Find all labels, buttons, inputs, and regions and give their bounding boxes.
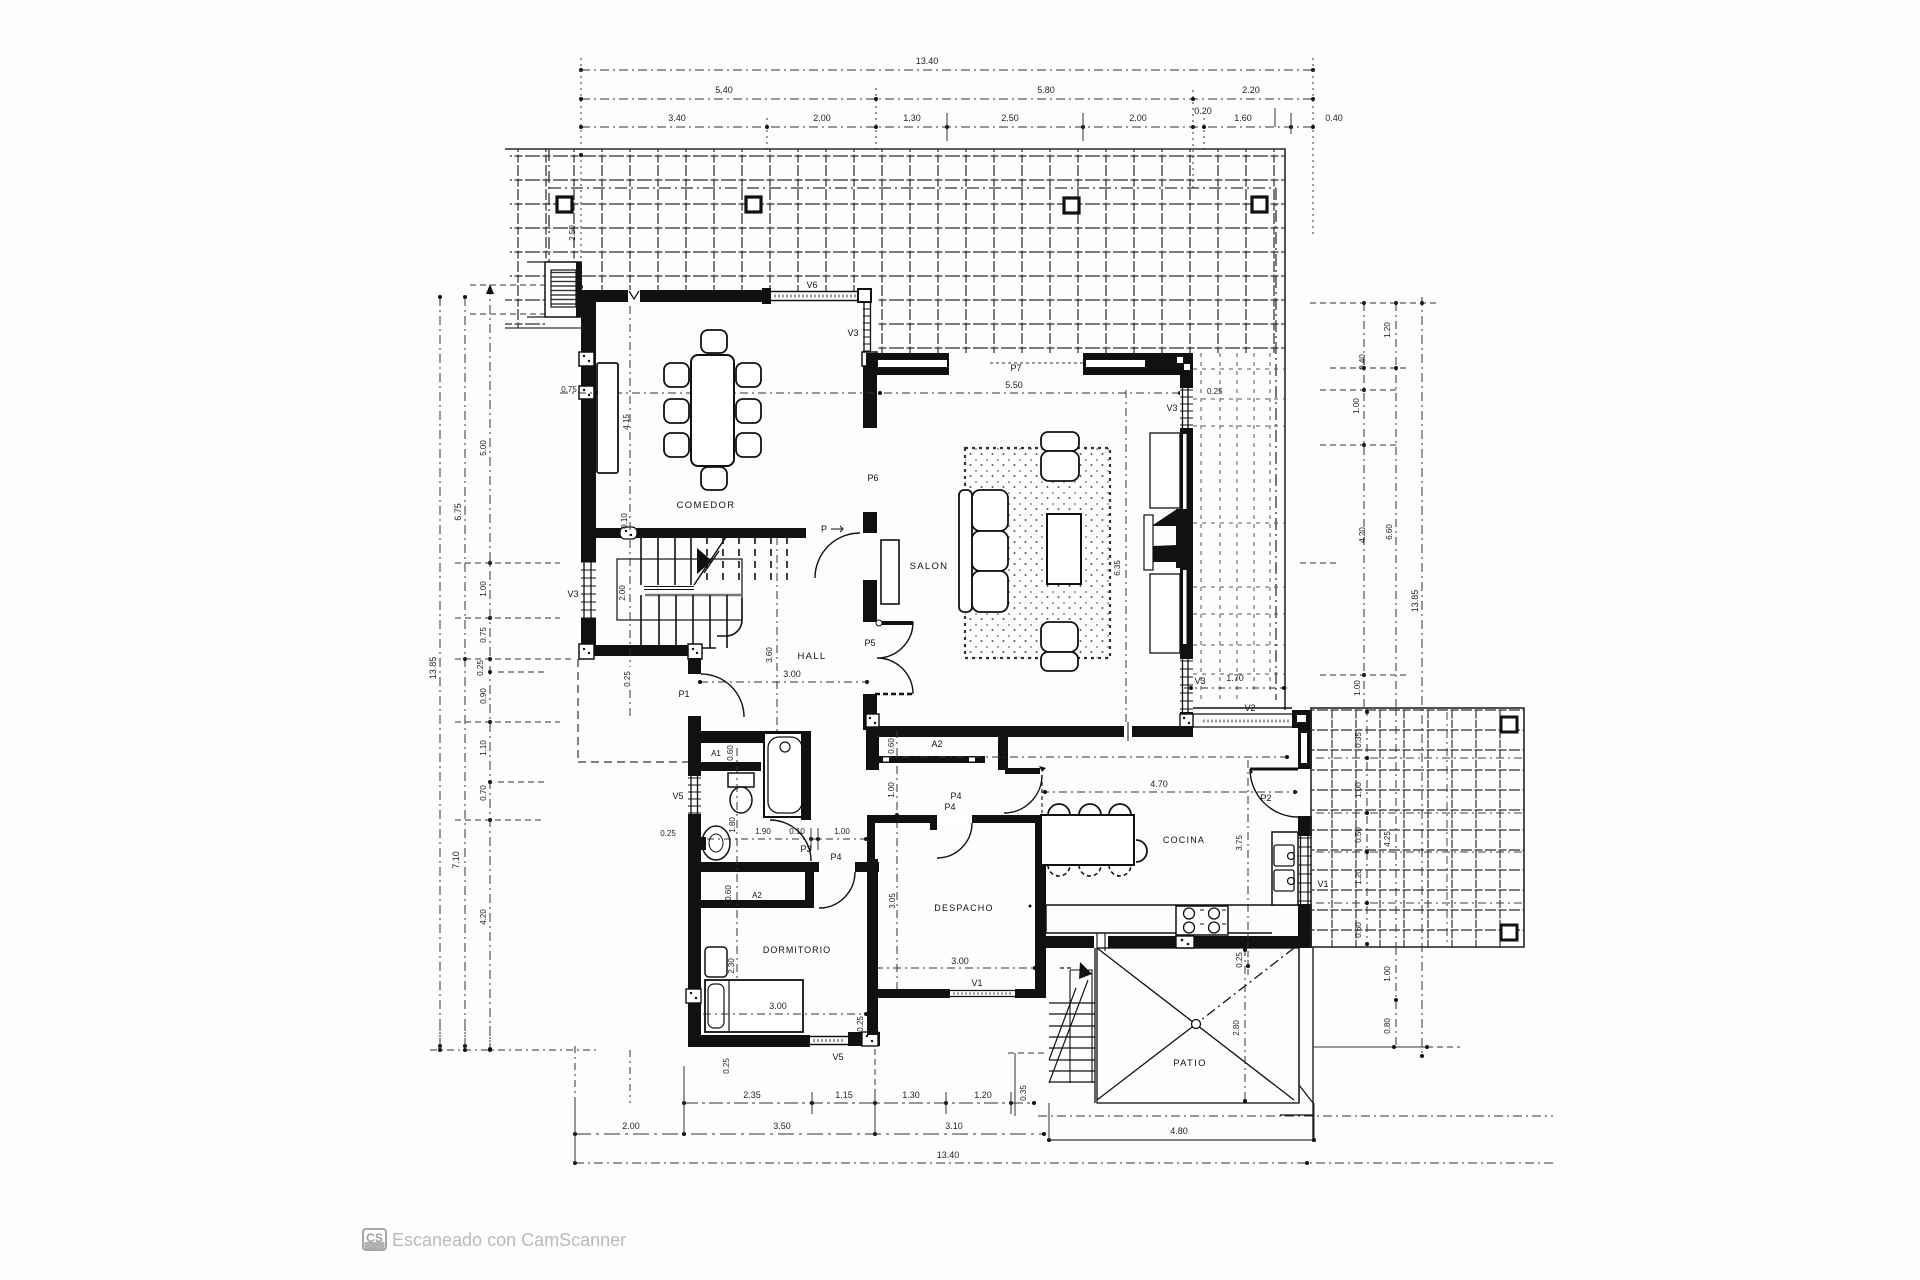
- svg-text:P: P: [821, 524, 827, 534]
- svg-text:6.35: 6.35: [1113, 560, 1122, 576]
- svg-text:0.60: 0.60: [726, 745, 735, 761]
- svg-text:0.25: 0.25: [856, 1016, 865, 1032]
- svg-text:P4: P4: [950, 791, 961, 801]
- svg-text:2.00: 2.00: [618, 585, 627, 601]
- svg-text:0.35: 0.35: [1354, 732, 1363, 748]
- svg-text:4.20: 4.20: [1358, 527, 1367, 543]
- svg-text:1.80: 1.80: [728, 817, 737, 833]
- svg-text:P4: P4: [944, 802, 955, 812]
- svg-text:DESPACHO: DESPACHO: [934, 903, 993, 913]
- svg-text:0.60: 0.60: [887, 738, 896, 754]
- svg-text:0.25: 0.25: [623, 671, 632, 687]
- svg-text:0.90: 0.90: [479, 688, 488, 704]
- svg-text:4.70: 4.70: [1150, 779, 1168, 789]
- svg-text:P2: P2: [1260, 793, 1271, 803]
- svg-text:V3: V3: [567, 589, 578, 599]
- svg-text:V6: V6: [806, 280, 817, 290]
- svg-text:0.10: 0.10: [620, 513, 629, 529]
- svg-text:0.25: 0.25: [476, 660, 485, 676]
- svg-text:A2: A2: [752, 891, 762, 900]
- svg-text:0.60: 0.60: [724, 885, 733, 901]
- svg-text:1.00: 1.00: [1353, 680, 1362, 696]
- svg-text:1.20: 1.20: [1383, 322, 1392, 338]
- svg-text:0.50: 0.50: [1354, 827, 1363, 843]
- svg-text:1.20: 1.20: [974, 1090, 992, 1100]
- svg-text:3.05: 3.05: [888, 893, 897, 909]
- svg-text:0.20: 0.20: [1194, 106, 1212, 116]
- svg-text:4.25: 4.25: [1383, 831, 1392, 847]
- svg-text:1.60: 1.60: [1234, 113, 1252, 123]
- svg-text:13.40: 13.40: [916, 56, 939, 66]
- svg-text:Escaneado con CamScanner: Escaneado con CamScanner: [392, 1230, 626, 1250]
- svg-text:V3: V3: [1166, 403, 1177, 413]
- svg-text:1.00: 1.00: [834, 827, 850, 836]
- svg-text:P7: P7: [1010, 363, 1021, 373]
- svg-text:A2: A2: [931, 739, 942, 749]
- svg-text:1.20: 1.20: [1354, 869, 1363, 885]
- svg-text:1.30: 1.30: [903, 113, 921, 123]
- svg-text:A1: A1: [711, 749, 721, 758]
- svg-text:1.00: 1.00: [887, 782, 896, 798]
- svg-text:5.50: 5.50: [1005, 380, 1023, 390]
- svg-text:V3: V3: [1194, 676, 1205, 686]
- svg-text:3.00: 3.00: [783, 669, 801, 679]
- svg-text:2.50: 2.50: [568, 225, 577, 241]
- svg-text:2.80: 2.80: [1232, 1020, 1241, 1036]
- svg-text:2.50: 2.50: [1001, 113, 1019, 123]
- svg-text:DORMITORIO: DORMITORIO: [763, 945, 831, 955]
- svg-text:0.25: 0.25: [1235, 952, 1244, 968]
- svg-text:3.00: 3.00: [769, 1001, 787, 1011]
- svg-text:2.00: 2.00: [1129, 113, 1147, 123]
- svg-text:13.85: 13.85: [428, 657, 438, 680]
- svg-text:CS: CS: [366, 1231, 383, 1245]
- svg-text:13.85: 13.85: [1410, 590, 1420, 613]
- svg-text:1.70: 1.70: [1226, 673, 1244, 683]
- svg-text:0.75: 0.75: [479, 627, 488, 643]
- svg-text:13.40: 13.40: [937, 1150, 960, 1160]
- svg-text:1.90: 1.90: [755, 827, 771, 836]
- svg-text:3.50: 3.50: [773, 1121, 791, 1131]
- svg-text:3.75: 3.75: [1235, 835, 1244, 851]
- svg-text:0.25: 0.25: [1207, 387, 1223, 396]
- svg-text:P4: P4: [830, 852, 841, 862]
- svg-text:0.80: 0.80: [1383, 1018, 1392, 1034]
- svg-text:1.00: 1.00: [479, 581, 488, 597]
- svg-text:2.35: 2.35: [743, 1090, 761, 1100]
- svg-text:V3: V3: [847, 328, 858, 338]
- svg-text:0.25: 0.25: [722, 1058, 731, 1074]
- svg-text:4.20: 4.20: [479, 909, 488, 925]
- svg-text:2.30: 2.30: [727, 958, 736, 974]
- svg-text:3.10: 3.10: [945, 1121, 963, 1131]
- svg-text:0.10: 0.10: [789, 827, 805, 836]
- svg-text:0.25: 0.25: [660, 829, 676, 838]
- svg-text:V5: V5: [672, 791, 683, 801]
- svg-text:1.00: 1.00: [1352, 398, 1361, 414]
- svg-text:COMEDOR: COMEDOR: [677, 500, 736, 511]
- svg-text:1.15: 1.15: [835, 1090, 853, 1100]
- svg-text:0.35: 0.35: [1019, 1085, 1028, 1101]
- svg-text:2.00: 2.00: [622, 1121, 640, 1131]
- svg-text:6.60: 6.60: [1385, 524, 1394, 540]
- svg-text:5.80: 5.80: [1037, 85, 1055, 95]
- svg-text:0.60: 0.60: [1354, 922, 1363, 938]
- svg-text:2.20: 2.20: [1242, 85, 1260, 95]
- svg-text:6.75: 6.75: [453, 503, 463, 521]
- svg-text:1.00: 1.00: [1383, 966, 1392, 982]
- svg-text:0.70: 0.70: [479, 785, 488, 801]
- svg-text:1.30: 1.30: [902, 1090, 920, 1100]
- svg-text:HALL: HALL: [798, 651, 827, 662]
- svg-text:V1: V1: [971, 978, 982, 988]
- svg-text:1.10: 1.10: [479, 740, 488, 756]
- svg-text:P5: P5: [864, 638, 875, 648]
- svg-text:P1: P1: [678, 689, 689, 699]
- svg-text:7.10: 7.10: [451, 851, 461, 869]
- svg-text:V5: V5: [832, 1052, 843, 1062]
- svg-text:3.40: 3.40: [668, 113, 686, 123]
- svg-text:0.40: 0.40: [1325, 113, 1343, 123]
- svg-text:PATIO: PATIO: [1173, 1058, 1207, 1069]
- svg-text:3.60: 3.60: [765, 647, 774, 663]
- svg-text:COCINA: COCINA: [1163, 835, 1205, 845]
- svg-text:4.80: 4.80: [1170, 1126, 1188, 1136]
- svg-text:SALON: SALON: [910, 561, 949, 572]
- svg-text:5.00: 5.00: [479, 440, 488, 456]
- svg-text:P6: P6: [867, 473, 878, 483]
- svg-text:5.40: 5.40: [715, 85, 733, 95]
- svg-text:1.00: 1.00: [1354, 782, 1363, 798]
- svg-text:2.00: 2.00: [813, 113, 831, 123]
- svg-text:3.00: 3.00: [951, 956, 969, 966]
